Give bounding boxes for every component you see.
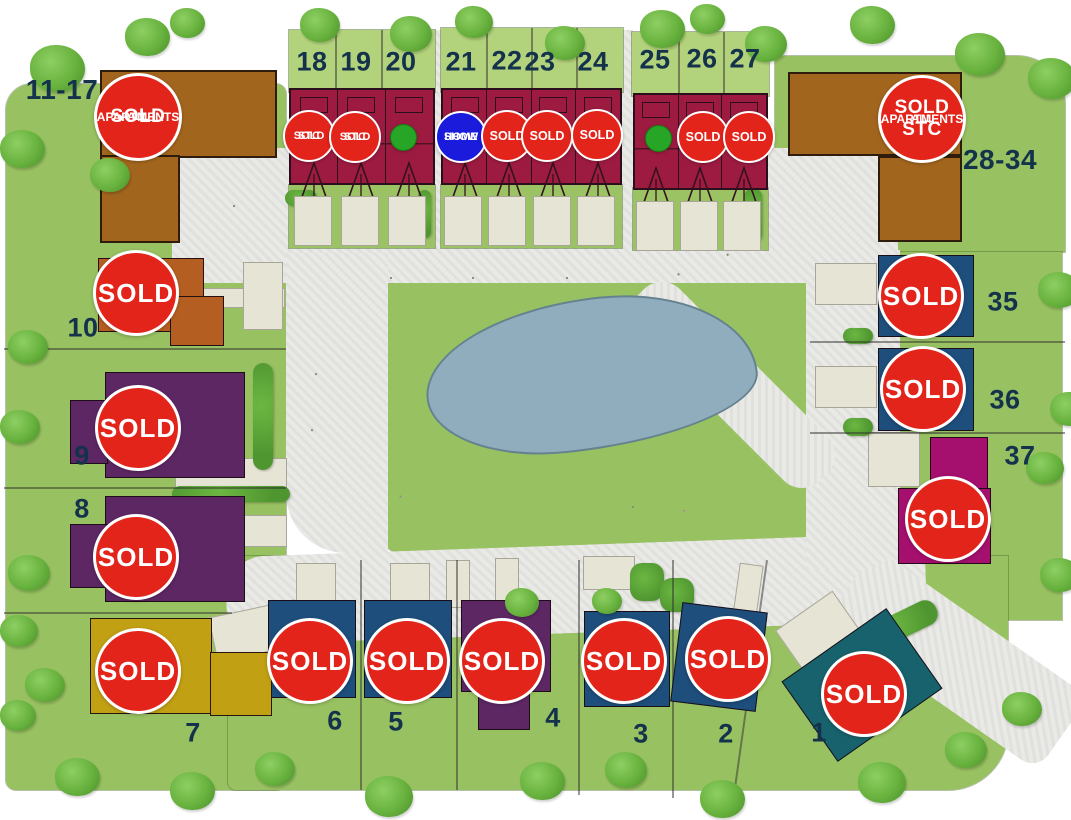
parking-bay — [726, 253, 729, 256]
plot-boundary-line — [381, 30, 383, 92]
apartments-status-badge-11-17[interactable]: ALLAPARTMENTSSOLD — [94, 73, 182, 161]
tree — [640, 10, 685, 48]
sold-badge-plot-26[interactable]: SOLD — [677, 111, 729, 163]
parking-bay — [566, 277, 568, 279]
tree — [1040, 558, 1071, 592]
badge-text: SOLD — [490, 129, 525, 143]
terrace-driveway — [533, 196, 571, 246]
plot-number-label: 4 — [545, 703, 561, 734]
badge-text: STC — [344, 131, 366, 143]
porch-canopy — [729, 165, 759, 205]
porch-canopy — [394, 160, 424, 200]
tree — [690, 4, 725, 34]
plot-number-label: 24 — [577, 47, 608, 78]
badge-text: SOLD — [732, 130, 767, 144]
sold-badge-plot-37[interactable]: SOLD — [905, 476, 991, 562]
sold-badge-plot-24[interactable]: SOLD — [571, 109, 623, 161]
tree — [300, 8, 340, 42]
tree — [55, 758, 100, 796]
tree — [0, 130, 45, 168]
parking-bay — [632, 506, 634, 508]
driveway — [583, 556, 635, 590]
porch-canopy — [685, 165, 715, 205]
sold-stc-badge-plot-18[interactable]: SOLDSTC — [283, 110, 335, 162]
tree — [1038, 272, 1071, 308]
parking-bay — [311, 429, 314, 432]
badge-text: SOLD — [464, 646, 540, 677]
plot-number-label: 7 — [185, 718, 201, 749]
porch-canopy — [583, 160, 613, 200]
plot-boundary-line — [360, 560, 362, 790]
badge-text: SOLD — [100, 413, 176, 444]
plot-boundary-line — [4, 487, 286, 489]
hedge — [630, 563, 664, 601]
plot-number-label: 21 — [445, 47, 476, 78]
sold-stc-badge-plot-19[interactable]: SOLDSTC — [329, 111, 381, 163]
terrace-driveway — [636, 201, 674, 251]
plot-boundary-line — [456, 560, 458, 790]
plot-boundary-line — [4, 612, 232, 614]
badge-text: SOLD — [369, 646, 445, 677]
plot-number-label: 26 — [686, 44, 717, 75]
plot-boundary-line — [578, 560, 580, 795]
tree — [365, 776, 413, 817]
apartment-block-28-34[interactable] — [878, 156, 962, 242]
plot-boundary-line — [723, 32, 725, 96]
badge-text: SOLD — [98, 542, 174, 573]
house-plot-7[interactable] — [210, 652, 272, 716]
plot-number-label: 5 — [388, 707, 404, 738]
badge-text: SOLD — [885, 374, 961, 405]
badge-text: SOLD — [272, 646, 348, 677]
terrace-driveway — [444, 196, 482, 246]
house-plot-10[interactable] — [170, 296, 224, 346]
dormer-window — [642, 102, 670, 118]
badge-text: SOLD — [826, 679, 902, 710]
parking-bays — [632, 506, 682, 532]
tree — [1002, 692, 1042, 726]
tree — [858, 762, 906, 803]
dormer-window — [395, 97, 423, 113]
badge-text: SOLD — [586, 646, 662, 677]
apartments-status-badge-28-34[interactable]: ALLAPARTMENTSSOLD STC — [878, 75, 966, 163]
terrace-driveway — [680, 201, 718, 251]
parking-bays — [390, 277, 458, 318]
parking-bays — [472, 277, 530, 318]
tree — [0, 700, 36, 731]
tree — [25, 668, 65, 702]
sold-badge-plot-2[interactable]: SOLD — [685, 616, 771, 702]
plot-boundary-line — [335, 30, 337, 92]
sold-badge-plot-23[interactable]: SOLD — [521, 110, 573, 162]
show-home-badge-plot-21[interactable]: SHOWHOME — [435, 111, 487, 163]
tree — [170, 8, 205, 38]
sold-badge-plot-9[interactable]: SOLD — [95, 385, 181, 471]
badge-text: SOLD STC — [881, 97, 963, 141]
plot-number-label: 27 — [729, 44, 760, 75]
parking-bay — [683, 510, 685, 512]
parking-bay — [233, 205, 235, 207]
sold-badge-plot-36[interactable]: SOLD — [880, 346, 966, 432]
tree — [700, 780, 745, 818]
plot-number-label: 36 — [989, 385, 1020, 416]
terrace-driveway — [488, 196, 526, 246]
apartment-range-label: 28-34 — [963, 144, 1037, 176]
sold-badge-plot-7[interactable]: SOLD — [95, 628, 181, 714]
tree — [125, 18, 170, 56]
parking-bay — [677, 273, 680, 276]
porch-canopy — [299, 160, 329, 200]
porch-canopy — [450, 160, 480, 200]
sold-badge-plot-3[interactable]: SOLD — [581, 618, 667, 704]
plot-number-label: 8 — [74, 494, 90, 525]
sold-badge-plot-8[interactable]: SOLD — [93, 514, 179, 600]
badge-text: SOLD — [98, 278, 174, 309]
tree — [520, 762, 565, 800]
badge-text: SOLD — [111, 106, 166, 128]
tree — [90, 158, 130, 192]
plot-number-label: 1 — [811, 718, 827, 749]
tree — [945, 732, 987, 768]
plot-number-label: 23 — [524, 47, 555, 78]
plot-number-label: 37 — [1004, 441, 1035, 472]
plot-boundary-line — [486, 28, 488, 92]
porch-canopy — [494, 160, 524, 200]
badge-text: SOLD — [910, 504, 986, 535]
terrace-driveway — [388, 196, 426, 246]
parking-bay — [472, 277, 474, 279]
badge-text: HOME — [445, 131, 478, 143]
porch-canopy — [641, 165, 671, 205]
parking-bay — [390, 277, 392, 279]
parking-bays — [683, 506, 733, 535]
tree — [1028, 58, 1071, 99]
plot-number-label: 3 — [633, 719, 649, 750]
tree — [505, 588, 539, 617]
site-plan-map: 11-17ALLAPARTMENTSSOLD28-34ALLAPARTMENTS… — [0, 0, 1071, 820]
badge-text: SOLD — [690, 644, 766, 675]
parking-bays — [397, 495, 450, 530]
badge-text: SOLD — [100, 656, 176, 687]
plot-boundary-line — [810, 432, 1065, 434]
available-marker-plot-20[interactable] — [390, 124, 417, 151]
driveway — [868, 432, 920, 487]
terrace-driveway — [341, 196, 379, 246]
parking-bay — [399, 495, 401, 497]
driveway — [815, 263, 877, 305]
sold-badge-plot-5[interactable]: SOLD — [364, 618, 450, 704]
tree — [0, 410, 40, 444]
driveway — [815, 366, 877, 408]
sold-badge-plot-6[interactable]: SOLD — [267, 618, 353, 704]
sold-badge-plot-4[interactable]: SOLD — [459, 618, 545, 704]
tree — [8, 330, 48, 364]
tree — [850, 6, 895, 44]
sold-badge-plot-10[interactable]: SOLD — [93, 250, 179, 336]
parking-bay — [315, 373, 318, 376]
plot-number-label: 22 — [491, 46, 522, 77]
tree — [255, 752, 295, 786]
badge-text: SOLD — [580, 128, 615, 142]
tree — [455, 6, 493, 38]
driveway — [243, 262, 283, 330]
plot-boundary-line — [810, 341, 1065, 343]
tree — [170, 772, 215, 810]
available-marker-plot-25[interactable] — [645, 125, 672, 152]
terrace-driveway — [577, 196, 615, 246]
plot-number-label: 9 — [74, 441, 90, 472]
hedge — [253, 363, 273, 470]
plot-number-label: 35 — [987, 287, 1018, 318]
porch-canopy — [346, 160, 376, 200]
apartment-range-label: 11-17 — [26, 74, 99, 106]
plot-number-label: 25 — [639, 45, 670, 76]
sold-badge-plot-27[interactable]: SOLD — [723, 111, 775, 163]
badge-text: SOLD — [883, 281, 959, 312]
tree — [605, 752, 647, 788]
plot-number-label: 2 — [718, 719, 734, 750]
badge-text: SOLD — [686, 130, 721, 144]
badge-text: STC — [298, 130, 320, 142]
tree — [0, 615, 38, 647]
terrace-driveway — [294, 196, 332, 246]
sold-badge-plot-1[interactable]: SOLD — [821, 651, 907, 737]
plot-number-label: 18 — [296, 47, 327, 78]
plot-number-label: 20 — [385, 47, 416, 78]
badge-text: SOLD — [530, 129, 565, 143]
plot-number-label: 19 — [340, 47, 371, 78]
sold-badge-plot-35[interactable]: SOLD — [878, 253, 964, 339]
tree — [955, 33, 1005, 76]
terrace-driveway — [723, 201, 761, 251]
porch-canopy — [538, 160, 568, 200]
tree — [8, 555, 50, 591]
tree — [592, 588, 622, 614]
plot-number-label: 6 — [327, 706, 343, 737]
plot-number-label: 10 — [67, 313, 98, 344]
